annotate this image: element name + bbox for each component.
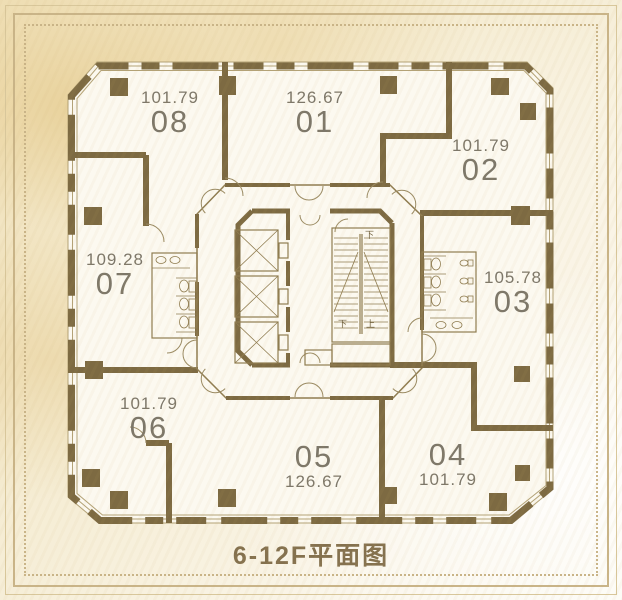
unit-08-label: 101.79 08 bbox=[115, 88, 225, 137]
unit-05-area: 126.67 bbox=[259, 472, 369, 491]
unit-07-label: 109.28 07 bbox=[60, 250, 170, 299]
unit-02-number: 02 bbox=[426, 155, 536, 185]
unit-03-label: 105.78 03 bbox=[458, 268, 568, 317]
unit-01-number: 01 bbox=[260, 107, 370, 137]
unit-01-label: 126.67 01 bbox=[260, 88, 370, 137]
unit-05-number: 05 bbox=[259, 442, 369, 472]
unit-03-number: 03 bbox=[458, 287, 568, 317]
unit-04-area: 101.79 bbox=[393, 470, 503, 489]
stair-down-label-bottom: 下 bbox=[338, 320, 347, 329]
stair-down-label-top: 下 bbox=[365, 231, 374, 240]
stair-up-label-bottom: 上 bbox=[366, 320, 375, 329]
unit-08-number: 08 bbox=[115, 107, 225, 137]
unit-06-label: 101.79 06 bbox=[94, 394, 204, 443]
unit-04-number: 04 bbox=[393, 440, 503, 470]
unit-04-label: 04 101.79 bbox=[393, 440, 503, 489]
plan-title: 6-12F平面图 bbox=[233, 536, 389, 572]
unit-06-number: 06 bbox=[94, 413, 204, 443]
unit-07-number: 07 bbox=[60, 269, 170, 299]
unit-02-label: 101.79 02 bbox=[426, 136, 536, 185]
floor-plan-page: { "title": "6-12F平面图", "units": [ {"id":… bbox=[0, 0, 622, 600]
unit-05-label: 05 126.67 bbox=[259, 442, 369, 491]
